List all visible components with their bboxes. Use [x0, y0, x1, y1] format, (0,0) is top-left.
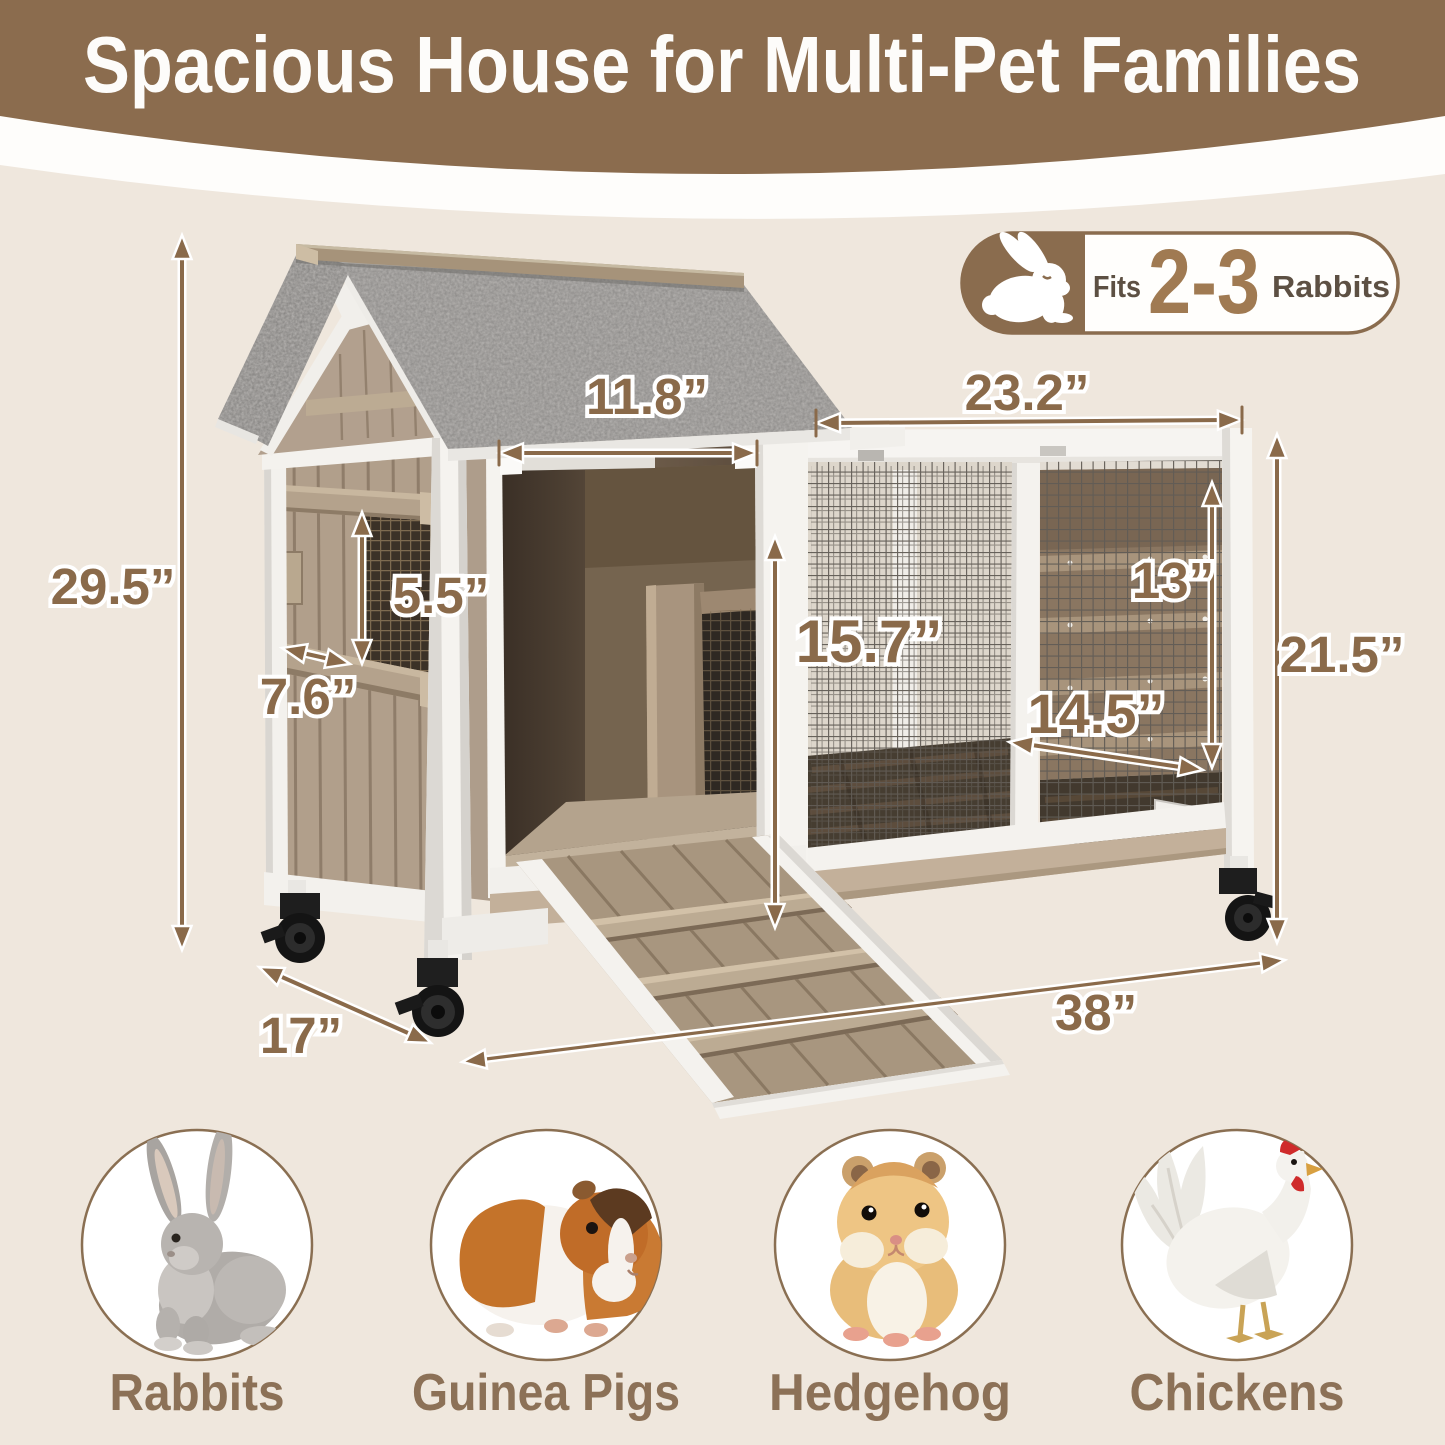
svg-text:Spacious House for Multi-Pet F: Spacious House for Multi-Pet Families — [83, 20, 1361, 109]
svg-text:7.6”: 7.6” — [260, 668, 356, 725]
svg-text:Rabbits: Rabbits — [1272, 269, 1390, 304]
svg-text:23.2”: 23.2” — [965, 364, 1090, 421]
svg-text:21.5”: 21.5” — [1280, 626, 1405, 683]
svg-text:38”: 38” — [1055, 984, 1137, 1041]
svg-text:17”: 17” — [260, 1007, 342, 1064]
svg-text:Chickens: Chickens — [1130, 1364, 1345, 1422]
svg-text:Hedgehog: Hedgehog — [769, 1364, 1011, 1422]
svg-text:Guinea Pigs: Guinea Pigs — [412, 1364, 680, 1422]
svg-text:13”: 13” — [1132, 552, 1214, 609]
svg-text:5.5”: 5.5” — [393, 567, 489, 624]
svg-text:14.5”: 14.5” — [1028, 682, 1165, 745]
svg-text:11.8”: 11.8” — [586, 368, 708, 425]
svg-text:2-3: 2-3 — [1148, 231, 1260, 333]
svg-text:15.7”: 15.7” — [796, 608, 943, 675]
svg-text:29.5”: 29.5” — [51, 558, 176, 615]
svg-text:Fits: Fits — [1093, 269, 1141, 304]
svg-text:Rabbits: Rabbits — [110, 1364, 285, 1422]
